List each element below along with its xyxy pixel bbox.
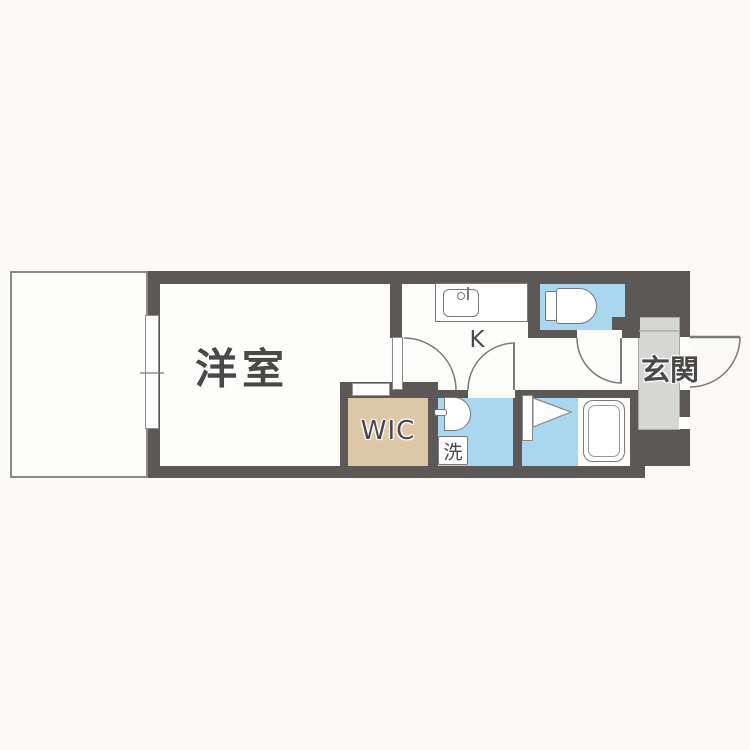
faucet-icon — [457, 292, 465, 300]
folding-door-bar-icon — [522, 395, 533, 441]
toilet-doorway — [577, 330, 622, 338]
faucet-handle-icon — [467, 287, 469, 300]
wall-top — [148, 271, 690, 284]
floor-plan: 洋室 K 玄関 WIC 洗 — [0, 0, 750, 750]
wall-laundry-bath — [513, 398, 522, 466]
wall-right-upper — [680, 317, 690, 337]
wall-bottom — [148, 466, 645, 478]
room-door-leaf — [392, 337, 403, 390]
wic-label: WIC — [361, 416, 416, 446]
western-room-label: 洋室 — [195, 336, 289, 397]
wall-niche — [679, 417, 690, 429]
laundry-doorway — [468, 390, 515, 398]
hallway-floor — [528, 338, 638, 390]
laundry-label: 洗 — [443, 438, 462, 465]
window — [145, 315, 159, 429]
wall-room-kitchen — [390, 284, 402, 338]
balcony — [10, 271, 148, 478]
washbasin-stem-icon — [434, 409, 447, 416]
wall-toilet-bottom-left — [540, 330, 577, 338]
wic-sliding-door — [352, 383, 390, 396]
bathtub-inner-icon — [588, 405, 620, 457]
toilet-bowl-icon — [556, 288, 597, 324]
wall-wic-left — [340, 398, 348, 466]
wall-bath-entrance — [630, 390, 638, 466]
entrance-label: 玄関 — [641, 347, 699, 389]
wall-bottom-right-block — [638, 430, 690, 466]
wall-kitchen-toilet — [528, 284, 540, 338]
kitchen-label: K — [469, 327, 484, 353]
wall-top-right-block — [625, 284, 690, 317]
wall-entrance-north — [622, 317, 640, 338]
